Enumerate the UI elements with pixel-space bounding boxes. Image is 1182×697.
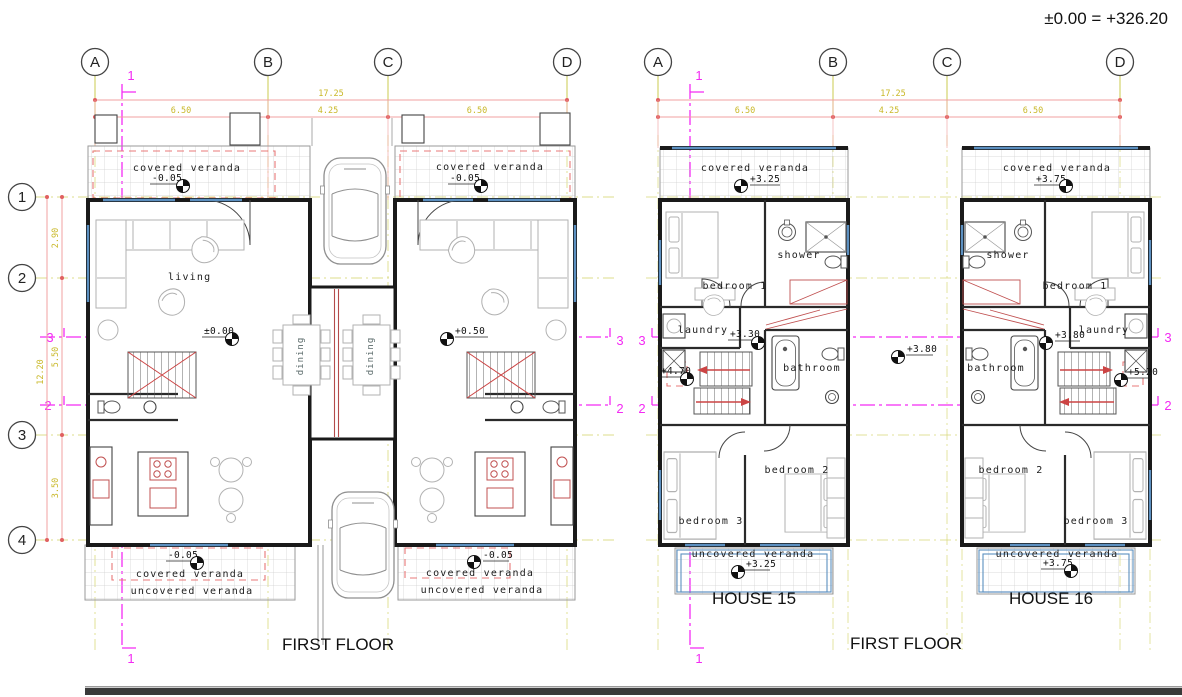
level-marker	[177, 180, 190, 193]
label-bedroom3-h15: bedroom 3	[679, 516, 744, 527]
grid-row-2: 2	[18, 270, 26, 287]
level-marker	[191, 557, 204, 570]
shower-tray-h15	[806, 222, 846, 252]
label-bathroom-h15: bathroom	[783, 363, 841, 374]
grid-col-a-right: A	[653, 54, 663, 71]
bed-h15-bedroom1	[666, 212, 718, 278]
label-bedroom1-h15: bedroom 1	[703, 281, 768, 292]
label-shower-h16: shower	[986, 250, 1029, 261]
toilet-h16-bathroom	[966, 348, 988, 360]
level-h15-veranda: +3.25	[750, 174, 780, 185]
chair-h15-bedroom1	[703, 295, 724, 316]
section-mark-3-right: 3	[1164, 330, 1171, 345]
level-marker	[226, 333, 239, 346]
dim-span-bc-left: 4.25	[318, 106, 338, 116]
label-bathroom-h16: bathroom	[967, 363, 1025, 374]
label-living: living	[168, 272, 211, 283]
right-plan-dimensions: 17.25 6.50 4.25 6.50	[656, 89, 1122, 148]
label-bedroom3-h16: bedroom 3	[1064, 516, 1129, 527]
label-covered-veranda-bl: covered veranda	[136, 569, 244, 580]
dim-row-34: 3.50	[51, 478, 61, 498]
grid-col-c-right: C	[942, 54, 953, 71]
label-dining-left: dining	[296, 337, 306, 376]
section-mark-1-left-top: 1	[127, 68, 134, 83]
toilet-h16-shower	[963, 256, 985, 268]
toilet-h15-shower	[825, 256, 847, 268]
label-covered-veranda-h16: covered veranda	[1003, 163, 1111, 174]
label-bedroom2-h15: bedroom 2	[765, 465, 830, 476]
section-mark-1-right-top: 1	[695, 68, 702, 83]
label-covered-veranda-tr: covered veranda	[436, 162, 544, 173]
left-plan-title: FIRST FLOOR	[282, 635, 394, 654]
section-mark-2-mid-left: 2	[616, 401, 623, 416]
section-mark-1-left-bottom: 1	[127, 651, 134, 666]
grid-col-a: A	[90, 54, 100, 71]
label-shower-h15: shower	[777, 250, 820, 261]
label-covered-veranda-tl: covered veranda	[133, 163, 241, 174]
level-h15-uncovered: +3.25	[746, 559, 776, 570]
grid-row-3: 3	[18, 427, 26, 444]
level-marker	[441, 333, 454, 346]
toilet-left-unit	[98, 401, 120, 413]
section-mark-3-mid-left: 3	[616, 333, 623, 348]
section-mark-2-left: 2	[44, 398, 51, 413]
right-plan-title: FIRST FLOOR	[850, 634, 962, 653]
grid-row-4: 4	[18, 532, 26, 549]
dim-row-12: 2.90	[51, 228, 61, 248]
car-top	[321, 158, 390, 264]
label-covered-veranda-h15: covered veranda	[701, 163, 809, 174]
level-marker	[735, 180, 748, 193]
dim-span-cd-left: 6.50	[467, 106, 487, 116]
grid-col-d: D	[562, 54, 573, 71]
house-16-title: HOUSE 16	[1009, 589, 1093, 608]
label-uncovered-veranda-bl: uncovered veranda	[131, 586, 254, 597]
sheet-footer-bar	[85, 686, 1182, 695]
label-dining-right: dining	[366, 337, 376, 376]
dim-span-ab-left: 6.50	[171, 106, 191, 116]
house-15-title: HOUSE 15	[712, 589, 796, 608]
datum-note: ±0.00 = +326.20	[1044, 9, 1168, 28]
section-mark-2-right: 2	[1164, 398, 1171, 413]
level-marker	[1040, 337, 1053, 350]
bed-h16-bedroom1	[1092, 212, 1144, 278]
label-laundry-h16: laundry	[1079, 325, 1130, 336]
shower-tray-h16	[965, 222, 1005, 252]
section-mark-3-mid-right: 3	[638, 333, 645, 348]
label-laundry-h15: laundry	[678, 325, 729, 336]
dim-span-ab-right: 6.50	[735, 106, 755, 116]
level-h16-stair: +5.20	[1128, 367, 1158, 378]
floor-plan-sheet: ±0.00 = +326.20 3 3 3 3 2 2 2 2 1 1 1 1 …	[0, 0, 1182, 697]
level-marker	[681, 373, 694, 386]
level-veranda-br: -0.05	[483, 550, 513, 561]
grid-col-c: C	[383, 54, 394, 71]
toilet-right-unit	[543, 401, 565, 413]
section-mark-1-right-bottom: 1	[695, 651, 702, 666]
right-plan: A B C D 17.25 6.50 4.25 6.50	[645, 49, 1163, 654]
level-marker	[1060, 180, 1073, 193]
level-marker	[1115, 374, 1128, 387]
level-marker	[468, 556, 481, 569]
car-bottom	[329, 492, 398, 598]
left-plan: A B C D 1 2 3 4 17.25 6.50 4.25 6.50 12.…	[9, 49, 619, 655]
level-unit-right: +0.50	[455, 326, 485, 337]
grid-col-b: B	[263, 54, 273, 71]
level-marker	[892, 351, 905, 364]
dim-span-bc-right: 4.25	[879, 106, 899, 116]
dim-total-height: 12.20	[36, 359, 46, 385]
label-bedroom2-h16: bedroom 2	[979, 465, 1044, 476]
grid-row-1: 1	[18, 189, 26, 206]
label-covered-veranda-br: covered veranda	[426, 568, 534, 579]
level-marker	[752, 337, 765, 350]
dim-total-width-left: 17.25	[318, 89, 344, 99]
section-mark-2-mid-right: 2	[638, 401, 645, 416]
label-uncovered-veranda-br: uncovered veranda	[421, 585, 544, 596]
label-bedroom1-h16: bedroom 1	[1043, 281, 1108, 292]
grid-col-b-right: B	[828, 54, 838, 71]
level-marker	[475, 180, 488, 193]
level-marker	[1065, 565, 1078, 578]
left-plan-row-bubbles: 1 2 3 4	[9, 184, 36, 554]
level-h16-hall: +3.80	[1055, 330, 1085, 341]
dim-total-width-right: 17.25	[880, 89, 906, 99]
grid-col-d-right: D	[1115, 54, 1126, 71]
level-between-houses: +3.80	[907, 344, 937, 355]
toilet-h15-bathroom	[822, 348, 844, 360]
level-marker	[732, 566, 745, 579]
dim-span-cd-right: 6.50	[1023, 106, 1043, 116]
chair-h16-bedroom1	[1085, 295, 1106, 316]
dim-row-23: 5.50	[51, 347, 61, 367]
